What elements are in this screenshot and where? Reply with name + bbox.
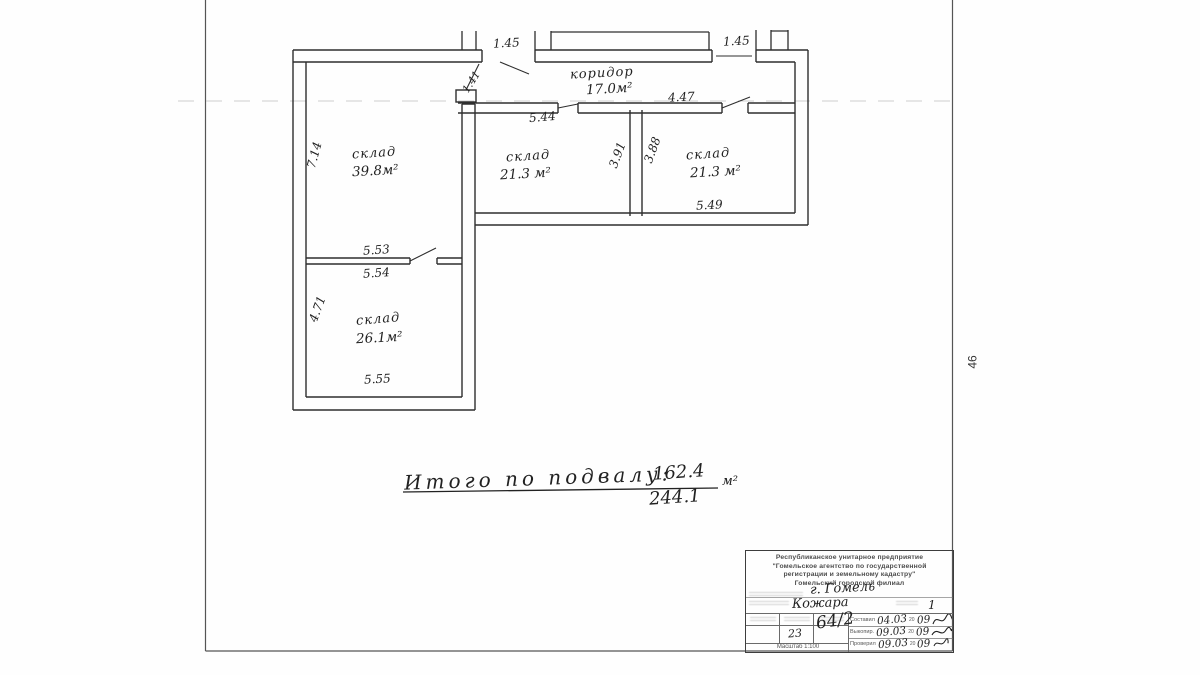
- title-block: Республиканское унитарное предприятие "Г…: [745, 550, 954, 653]
- row-date-handwritten: 09.03: [877, 637, 908, 652]
- org-line-1: Республиканское унитарное предприятие: [748, 554, 951, 563]
- illegible-print: [784, 616, 810, 621]
- org-line-3: регистрации и земельному кадастру": [748, 571, 951, 580]
- room-area-sklad1: 39.8м²: [352, 162, 399, 180]
- illegible-print: [749, 590, 803, 596]
- illegible-print: [749, 600, 789, 605]
- stamp-rule-1: [746, 597, 953, 598]
- total-unit: м²: [722, 474, 738, 489]
- row-label: Проверил: [850, 641, 876, 647]
- room-area-sklad2: 21.3 м²: [500, 165, 552, 184]
- room-area-sklad3: 21.3 м²: [690, 163, 742, 182]
- signature-scribble: [933, 638, 949, 650]
- house-number-handwritten: 1: [928, 598, 936, 612]
- dim-partition-top: 5.53: [363, 242, 391, 258]
- scanned-floor-plan-page: коридор 17.0м² склад 39.8м² склад 21.3 м…: [0, 0, 1200, 675]
- row-label: Выкопир.: [850, 629, 874, 635]
- stamp-cell-line: [813, 613, 814, 643]
- dim-right-bottom: 5.49: [696, 197, 723, 212]
- signature-scribble: [931, 626, 952, 639]
- stamp-cell-line: [779, 613, 780, 643]
- room-label-sklad3: склад: [686, 145, 731, 163]
- dim-top-right: 1.45: [723, 33, 750, 48]
- total-denominator: 244.1: [648, 485, 701, 510]
- room-label-sklad2: склад: [506, 147, 551, 165]
- illegible-print: [750, 616, 776, 621]
- dim-corridor-right: 4.47: [668, 89, 695, 104]
- year-prefix: 20: [910, 641, 916, 647]
- dim-partition-bottom: 5.54: [363, 265, 391, 281]
- floor-plan-drawing: [0, 0, 1200, 675]
- total-numerator: 162.4: [652, 460, 705, 485]
- dim-top-left: 1.45: [493, 35, 520, 50]
- dim-lower-bottom: 5.55: [364, 371, 391, 386]
- page-side-number: 46: [966, 355, 980, 368]
- row-label: Составил: [850, 617, 875, 623]
- scale-label: Масштаб 1:100: [748, 644, 848, 650]
- org-line-2: "Гомельское агентство по государственной: [748, 563, 951, 572]
- row-year-handwritten: 09: [917, 637, 931, 650]
- stamp-row-copied: Выкопир. 09.03 20 09: [850, 626, 952, 638]
- stamp-row-checked: Проверил 09.03 20 09: [850, 638, 952, 650]
- illegible-print: [896, 600, 918, 605]
- room-area-sklad4: 26.1м²: [356, 329, 403, 347]
- room-label-sklad1: склад: [352, 144, 397, 162]
- room-area-corridor: 17.0м²: [586, 80, 633, 98]
- dim-mid-top: 5.44: [528, 109, 556, 125]
- year-prefix: 20: [909, 617, 915, 623]
- sheet-number-handwritten: 23: [788, 627, 803, 641]
- year-prefix: 20: [908, 629, 914, 635]
